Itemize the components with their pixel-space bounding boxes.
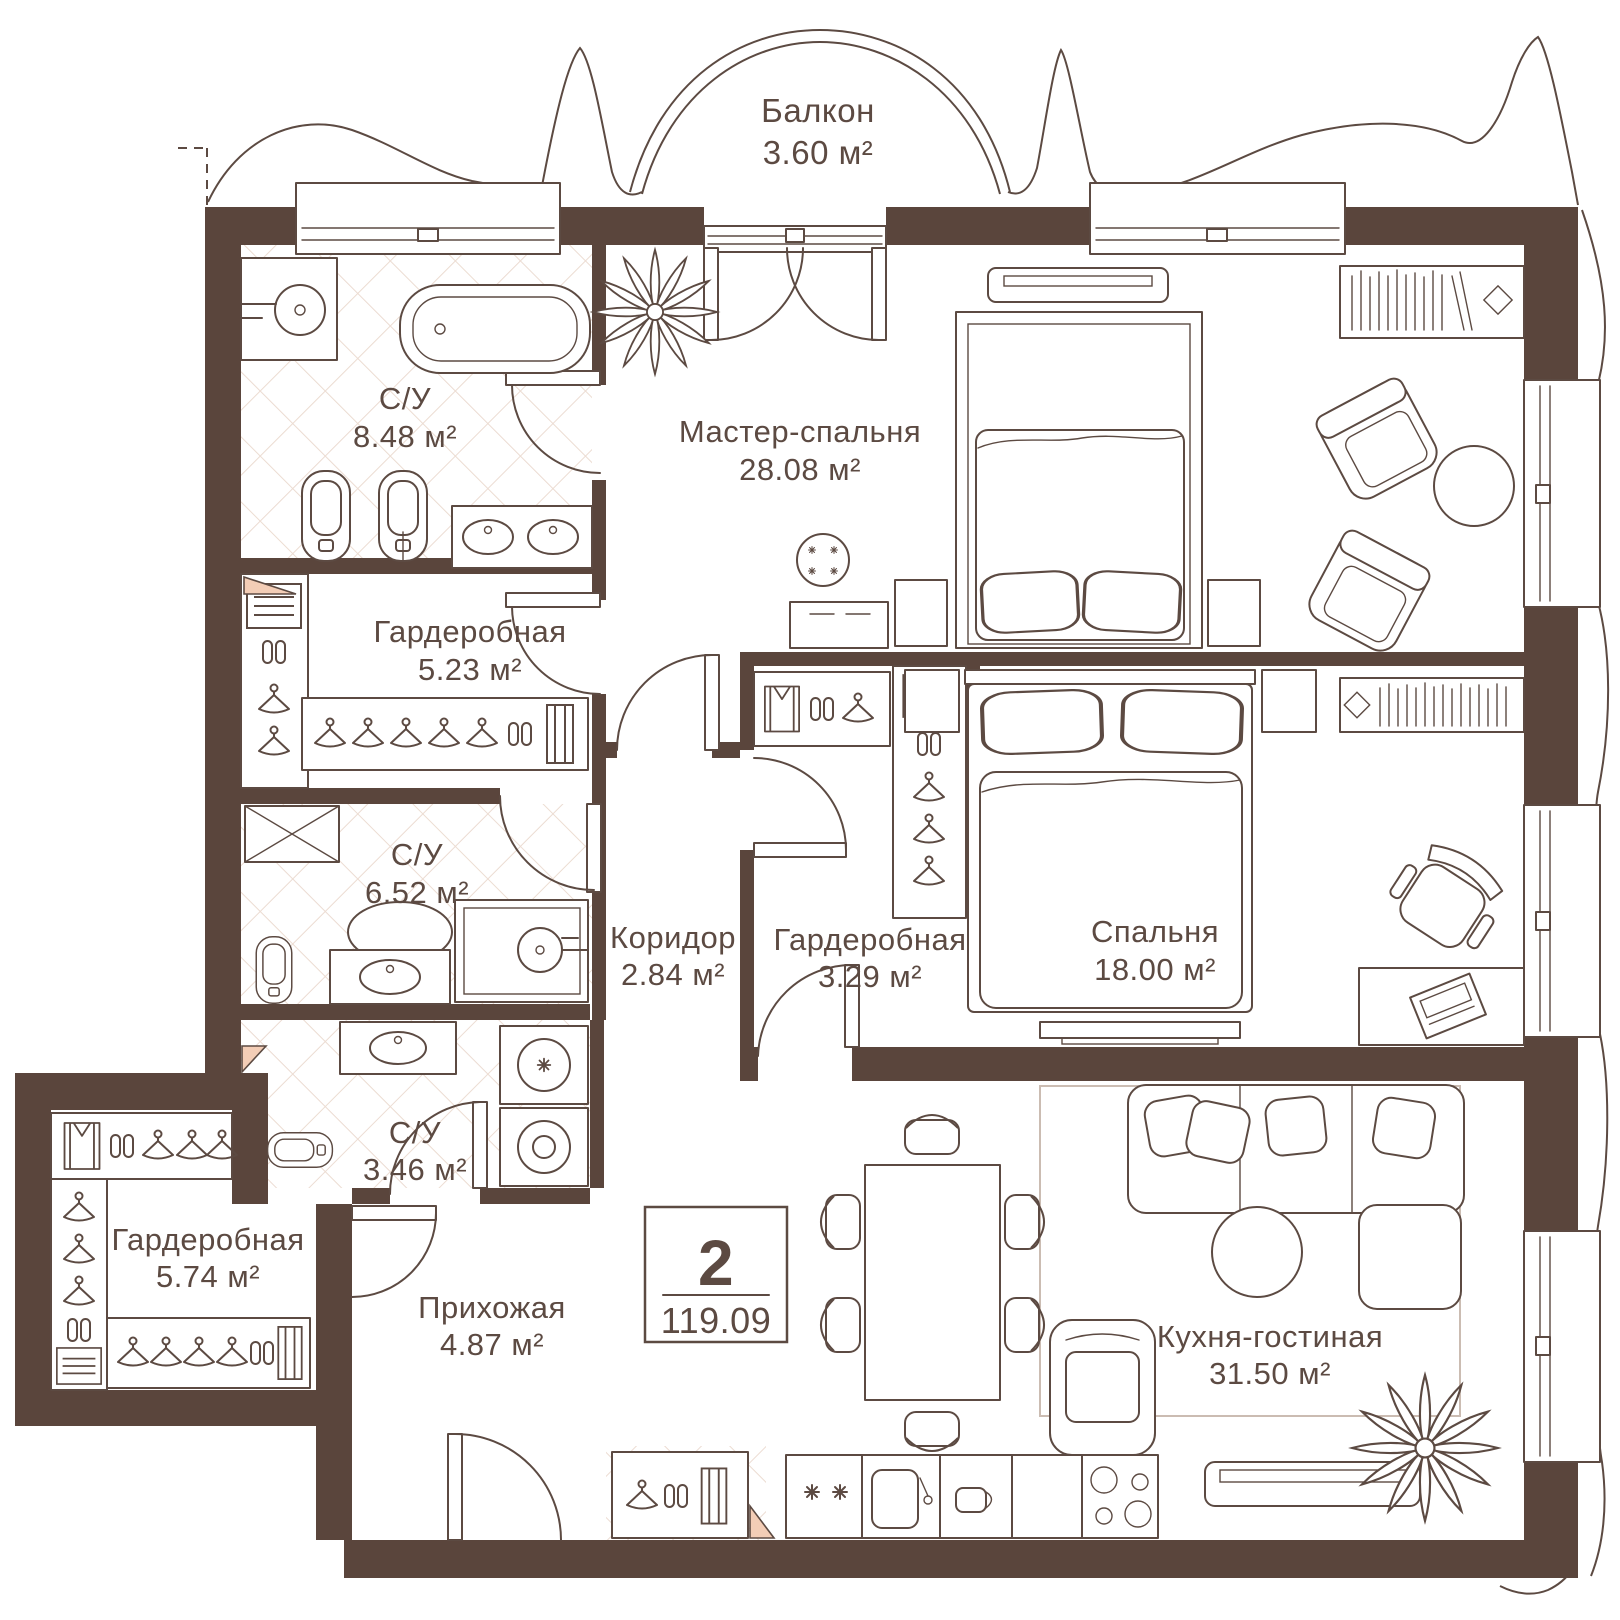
kitchen-area: 31.50 м² [1209, 1356, 1331, 1391]
wardrobe-bottom-label: Гардеробная [111, 1222, 304, 1257]
wardrobe-bottom-area: 5.74 м² [156, 1259, 260, 1294]
shower-icon [455, 900, 588, 1002]
corridor-area: 2.84 м² [621, 957, 725, 992]
wardrobe-top-area: 5.23 м² [418, 652, 522, 687]
corridor-label: Коридор [610, 920, 736, 955]
side-table-icon [1434, 446, 1514, 526]
window-right-2 [1524, 805, 1600, 1037]
top-shelf [51, 1113, 237, 1179]
summary-badge: 2 119.09 [645, 1207, 787, 1342]
tv-bench-icon [1040, 1022, 1240, 1044]
master-area: 28.08 м² [739, 452, 861, 487]
wardrobe-top-label: Гардеробная [373, 614, 566, 649]
kitchen-sink-icon [862, 1455, 940, 1538]
bedroom-area: 18.00 м² [1094, 952, 1216, 987]
bookshelf-icon [1340, 266, 1524, 338]
counter [1012, 1455, 1082, 1538]
corridor-content: Коридор 2.84 м² [610, 920, 736, 992]
fridge-icon [786, 1455, 862, 1538]
stove-icon [1082, 1455, 1158, 1538]
tv-console-icon [988, 268, 1168, 302]
window-right-3 [1524, 1231, 1600, 1462]
dryer-icon [500, 1108, 588, 1186]
sink-icon [340, 1022, 456, 1074]
hanger-rack [107, 1318, 310, 1388]
master-label: Мастер-спальня [679, 414, 921, 449]
dining-set [821, 1115, 1044, 1451]
bathtub-icon [400, 285, 590, 373]
toilet-icon [268, 1133, 333, 1168]
lounge-chair-icon [1050, 1320, 1155, 1455]
ceiling-light-icon [797, 534, 849, 586]
toilet-icon [302, 471, 350, 561]
coffee-point-icon [940, 1455, 1012, 1538]
wardrobe-middle-label: Гардеробная [773, 922, 966, 957]
coffee-table-icon [1212, 1207, 1302, 1297]
balcony-label: Балкон [761, 92, 875, 129]
floor-plan: Балкон 3.60 м² [0, 0, 1620, 1620]
balcony: Балкон 3.60 м² [630, 30, 1010, 194]
nightstand-icon [1262, 670, 1316, 732]
armchair-icon [1303, 527, 1433, 657]
badge-rooms-count: 2 [698, 1227, 734, 1299]
dining-table-icon [865, 1165, 1000, 1400]
badge-total-area: 119.09 [661, 1300, 771, 1341]
hanger-rack [302, 698, 588, 770]
double-sink-icon [452, 506, 592, 568]
window-top-left [296, 183, 560, 254]
door-entrance [448, 1434, 561, 1540]
shower-icon [241, 258, 337, 360]
desk-icon [1359, 968, 1524, 1045]
door-wardrobe-bottom [352, 1206, 436, 1297]
bedroom-content: Спальня 18.00 м² [905, 670, 1524, 1045]
hallway-area: 4.87 м² [440, 1327, 544, 1362]
door-wardrobe-middle [754, 758, 846, 857]
armchair-icon [1313, 375, 1443, 505]
dresser-icon [790, 602, 888, 648]
bedroom-label: Спальня [1091, 914, 1219, 949]
sink-icon [330, 950, 450, 1004]
nightstand-icon [1208, 580, 1260, 646]
bath-top-label: С/У [379, 381, 431, 416]
bath-small-area: 3.46 м² [363, 1152, 467, 1187]
top-shelf [754, 672, 890, 746]
window-right-1 [1524, 380, 1600, 607]
door-master [617, 655, 719, 750]
master-bedroom-content: Мастер-спальня 28.08 м² [593, 250, 1524, 657]
washer-icon [500, 1026, 588, 1104]
hallway-content: Прихожая 4.87 м² [418, 1290, 566, 1362]
balcony-door-sill [704, 226, 886, 252]
balcony-area: 3.60 м² [763, 134, 874, 171]
kitchen-label: Кухня-гостиная [1157, 1319, 1383, 1354]
office-chair-icon [1381, 831, 1516, 961]
bookshelf-icon [1340, 678, 1524, 732]
toilet-icon [256, 937, 292, 1004]
bath-middle-area: 6.52 м² [365, 875, 469, 910]
balcony-doors [704, 248, 886, 340]
bath-top-area: 8.48 м² [353, 419, 457, 454]
cabinet-icon [245, 806, 339, 862]
side-column [51, 1179, 107, 1390]
bidet-icon [379, 471, 427, 561]
master-bed-icon [956, 312, 1202, 648]
wardrobe-middle-area: 3.29 м² [818, 959, 922, 994]
entry-closet-icon [612, 1452, 748, 1538]
nightstand-icon [895, 580, 947, 646]
floor-plan-page: Балкон 3.60 м² [0, 0, 1620, 1620]
window-top-right [1090, 183, 1345, 254]
bath-small-label: С/У [389, 1115, 441, 1150]
hallway-label: Прихожая [418, 1290, 566, 1325]
plant-icon [593, 250, 717, 374]
bath-middle-label: С/У [391, 837, 443, 872]
nightstand-icon [905, 670, 959, 732]
